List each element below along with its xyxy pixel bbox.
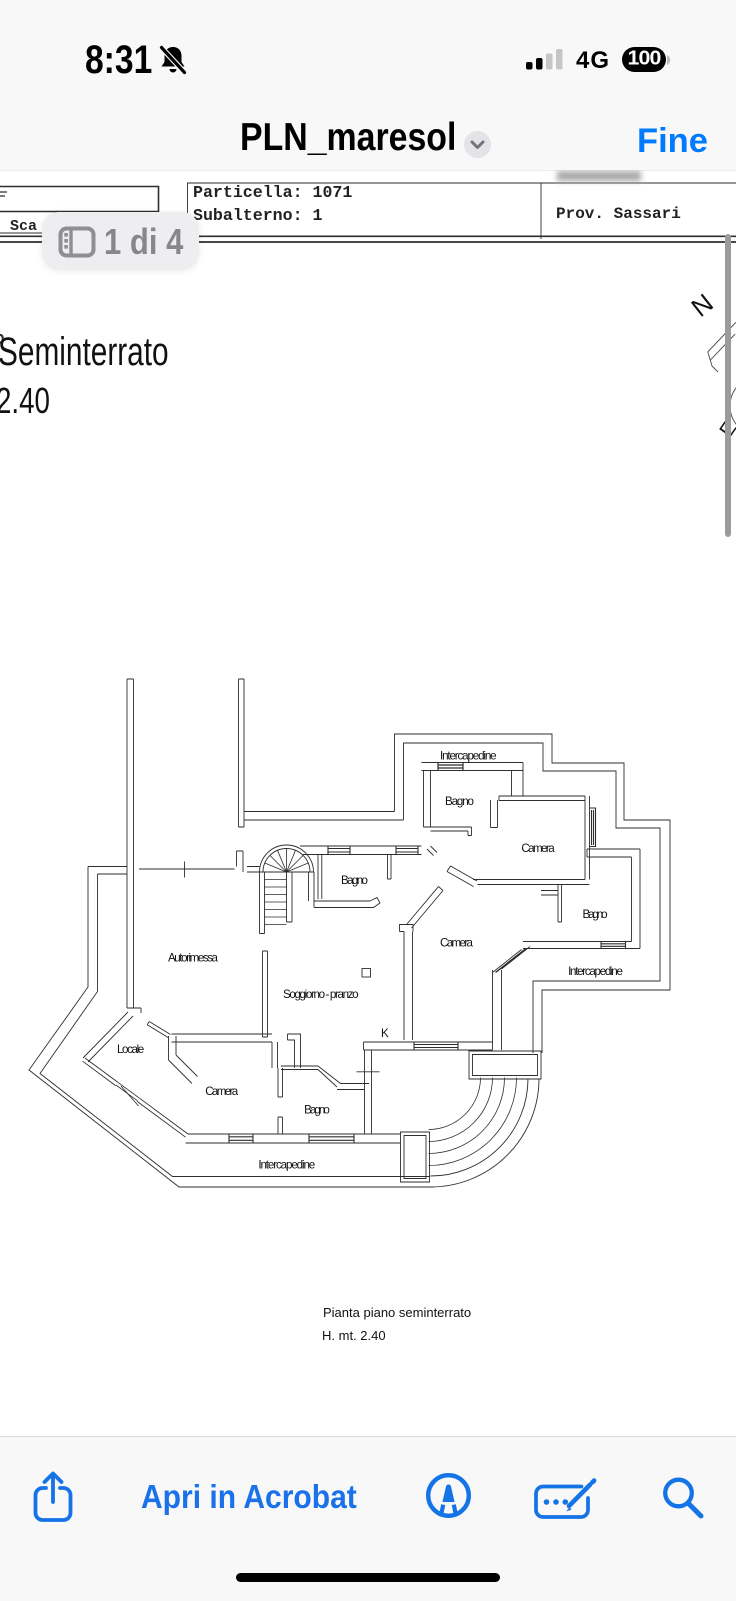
svg-text:Locale: Locale bbox=[117, 1043, 144, 1056]
svg-text:Bagno: Bagno bbox=[304, 1104, 330, 1117]
svg-text:Subalterno: 1: Subalterno: 1 bbox=[193, 206, 322, 225]
svg-text:Particella: 1071: Particella: 1071 bbox=[193, 183, 352, 202]
svg-text:Sca: Sca bbox=[10, 218, 37, 235]
svg-text:Bagno: Bagno bbox=[445, 795, 474, 808]
svg-text:Camera: Camera bbox=[440, 937, 474, 950]
svg-text:Soggiorno - pranzo: Soggiorno - pranzo bbox=[283, 988, 359, 1001]
svg-text:N: N bbox=[685, 288, 718, 323]
svg-text:Camera: Camera bbox=[205, 1085, 239, 1098]
svg-text:K: K bbox=[381, 1027, 389, 1040]
svg-text:Bagno: Bagno bbox=[341, 874, 368, 887]
svg-text:Intercapedine: Intercapedine bbox=[258, 1159, 315, 1172]
svg-text:Prov. Sassari: Prov. Sassari bbox=[556, 205, 681, 223]
svg-text:Intercapedine: Intercapedine bbox=[568, 965, 623, 978]
svg-text:Camera: Camera bbox=[521, 842, 555, 855]
svg-text:Bagno: Bagno bbox=[582, 908, 607, 921]
svg-text:Autorimessa: Autorimessa bbox=[168, 952, 219, 965]
svg-text:Intercapedine: Intercapedine bbox=[440, 750, 497, 763]
